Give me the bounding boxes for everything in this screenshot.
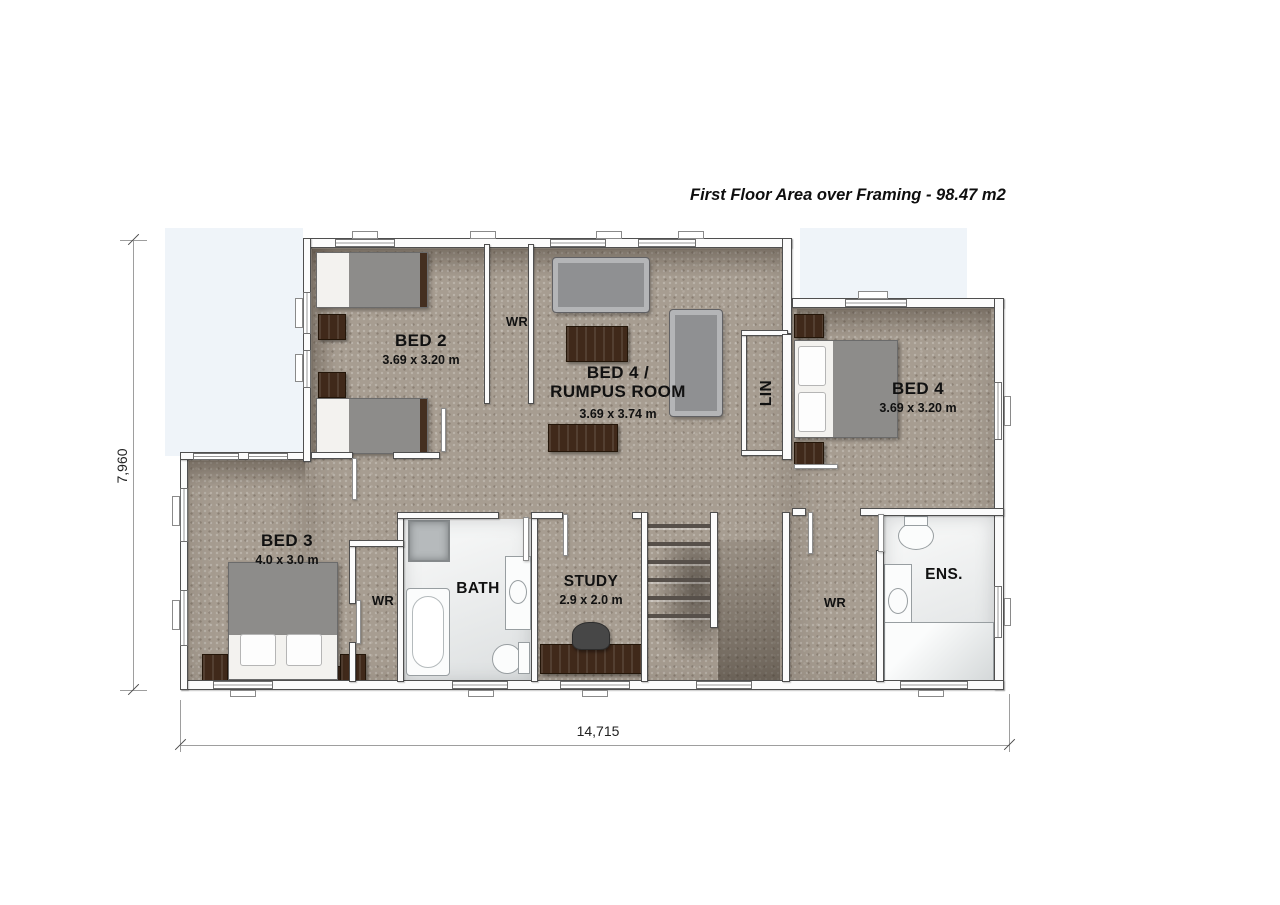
room-label-ensuite: ENS. — [916, 566, 972, 583]
room-label-wr-left: WR — [366, 593, 400, 608]
room-label-rumpus: BED 4 / RUMPUS ROOM 3.69 x 3.74 m — [536, 363, 700, 422]
stair-tread — [648, 614, 710, 618]
wall — [782, 238, 792, 334]
window — [994, 382, 1002, 440]
room-label-wr-right: WR — [816, 595, 854, 610]
door-ensuite — [878, 514, 884, 552]
window — [845, 299, 907, 307]
window-sill — [295, 298, 303, 328]
door-wr-left — [356, 600, 361, 644]
window — [638, 239, 696, 247]
door-bed3 — [352, 458, 357, 500]
room-size-study: 2.9 x 2.0 m — [537, 592, 645, 608]
roof-void-top-left — [165, 228, 303, 456]
ensuite-vanity-basin — [888, 588, 908, 614]
ensuite-toilet-bowl — [898, 522, 934, 550]
room-name-study: STUDY — [537, 573, 645, 590]
room-size-bed3: 4.0 x 3.0 m — [212, 552, 362, 568]
plan-title: First Floor Area over Framing - 98.47 m2 — [690, 186, 990, 205]
bed4-pillow-1 — [798, 346, 826, 386]
bed2-single-bed-1 — [316, 252, 428, 308]
vertical-dimension-label: 7,960 — [114, 438, 130, 494]
window — [335, 239, 395, 247]
wall — [531, 512, 563, 519]
bed2-single-bed-2 — [316, 398, 428, 454]
rumpus-sofa-1 — [553, 258, 649, 312]
window — [994, 586, 1002, 638]
wall-linen-top — [741, 330, 788, 336]
ensuite-toilet-tank — [904, 516, 928, 526]
window-sill — [1004, 598, 1011, 626]
stair-tread — [648, 596, 710, 600]
room-label-bed2: BED 2 3.69 x 3.20 m — [346, 331, 496, 368]
window-sill — [468, 690, 494, 697]
window-sill — [582, 690, 608, 697]
window — [180, 590, 188, 646]
room-name-rumpus-line2: RUMPUS ROOM — [536, 382, 700, 401]
door-wr-right — [808, 512, 813, 554]
window — [900, 681, 968, 689]
bed4-nightstand-1 — [794, 314, 824, 338]
window — [193, 453, 239, 460]
room-name-bed4: BED 4 — [845, 379, 991, 398]
ensuite-shower — [884, 622, 994, 682]
room-size-bed4: 3.69 x 3.20 m — [845, 400, 991, 416]
room-label-bed4: BED 4 3.69 x 3.20 m — [845, 379, 991, 416]
bath-shower — [408, 520, 450, 562]
window-sill — [858, 291, 888, 299]
rumpus-sideboard — [548, 424, 618, 452]
bath-vanity-basin — [509, 580, 527, 604]
room-label-bed3: BED 3 4.0 x 3.0 m — [212, 531, 362, 568]
window-sill — [230, 690, 256, 697]
wall-bath-top — [397, 512, 499, 519]
window-sill — [172, 600, 180, 630]
window-sill — [678, 231, 704, 239]
window — [696, 681, 752, 689]
window — [180, 488, 188, 542]
stair-tread — [648, 542, 710, 546]
bed3-nightstand-1 — [202, 654, 228, 682]
window — [550, 239, 606, 247]
wall-stair-right — [710, 512, 718, 628]
horizontal-dimension-label: 14,715 — [553, 723, 643, 739]
door-study — [563, 514, 568, 556]
window-sill — [596, 231, 622, 239]
horizontal-dimension-line — [180, 745, 1010, 746]
bathtub-basin — [412, 596, 444, 668]
stair-tread — [648, 524, 710, 528]
window-sill — [1004, 396, 1011, 426]
room-label-linen: LIN — [758, 371, 774, 415]
staircase — [648, 514, 710, 640]
bed4-nightstand-2 — [794, 442, 824, 466]
room-name-rumpus-line1: BED 4 / — [536, 363, 700, 382]
wall-wr-right-left — [782, 512, 790, 682]
floor-plan-canvas: First Floor Area over Framing - 98.47 m2 — [0, 0, 1280, 905]
wall-wr-left — [349, 642, 356, 682]
wall-bed2-wr — [484, 244, 490, 404]
door-bed2 — [441, 408, 446, 452]
stair-tread — [648, 560, 710, 564]
room-label-study: STUDY 2.9 x 2.0 m — [537, 573, 645, 608]
window — [303, 350, 311, 388]
window — [213, 681, 273, 689]
bed2-nightstand-1 — [318, 314, 346, 340]
window-sill — [172, 496, 180, 526]
window-sill — [470, 231, 496, 239]
study-chair — [572, 622, 610, 650]
bed2-nightstand-2 — [318, 372, 346, 398]
wall-spine — [782, 334, 792, 460]
room-label-wr-top: WR — [501, 314, 533, 329]
window — [303, 292, 311, 334]
stair-tread — [648, 578, 710, 582]
room-label-bath: BATH — [447, 580, 509, 597]
window — [248, 453, 288, 460]
bath-toilet-tank — [518, 642, 530, 674]
wall-linen-left — [741, 330, 747, 456]
room-name-bed3: BED 3 — [212, 531, 362, 550]
rumpus-coffee-table — [566, 326, 628, 362]
window — [452, 681, 508, 689]
bed3-pillow-2 — [286, 634, 322, 666]
window-sill — [295, 354, 303, 382]
window-sill — [352, 231, 378, 239]
wall-linen-bottom — [741, 450, 788, 456]
door-bath — [523, 517, 529, 561]
window — [560, 681, 630, 689]
wall — [393, 452, 440, 459]
window-sill — [918, 690, 944, 697]
room-name-bed2: BED 2 — [346, 331, 496, 350]
room-size-bed2: 3.69 x 3.20 m — [346, 352, 496, 368]
room-size-rumpus: 3.69 x 3.74 m — [536, 406, 700, 422]
wall — [311, 452, 353, 459]
wall-wr-ensuite — [876, 550, 884, 682]
door-bed4 — [794, 464, 838, 469]
vertical-dimension-line — [133, 240, 134, 690]
bed4-pillow-2 — [798, 392, 826, 432]
wall — [792, 508, 806, 516]
bed3-pillow-1 — [240, 634, 276, 666]
